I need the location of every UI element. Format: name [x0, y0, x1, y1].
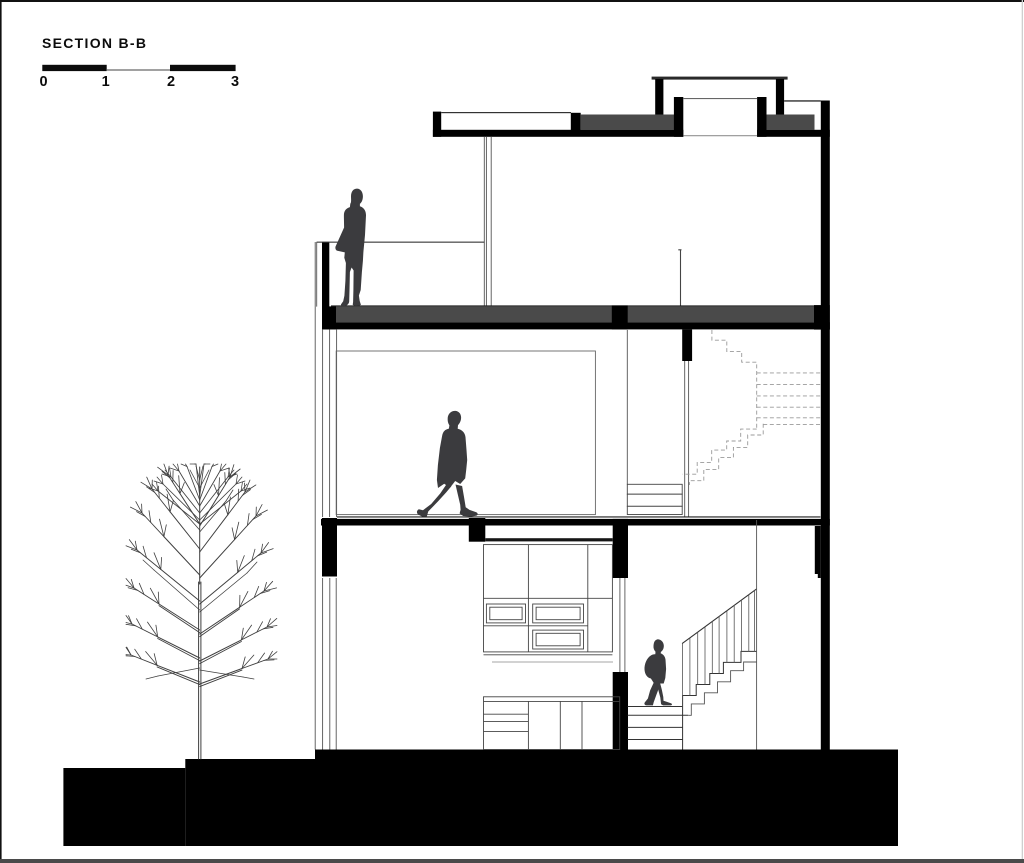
svg-text:SECTION B-B: SECTION B-B: [42, 35, 146, 51]
svg-text:2: 2: [167, 74, 175, 90]
svg-text:0: 0: [39, 74, 47, 90]
svg-text:1: 1: [102, 74, 110, 90]
svg-text:3: 3: [231, 74, 239, 90]
